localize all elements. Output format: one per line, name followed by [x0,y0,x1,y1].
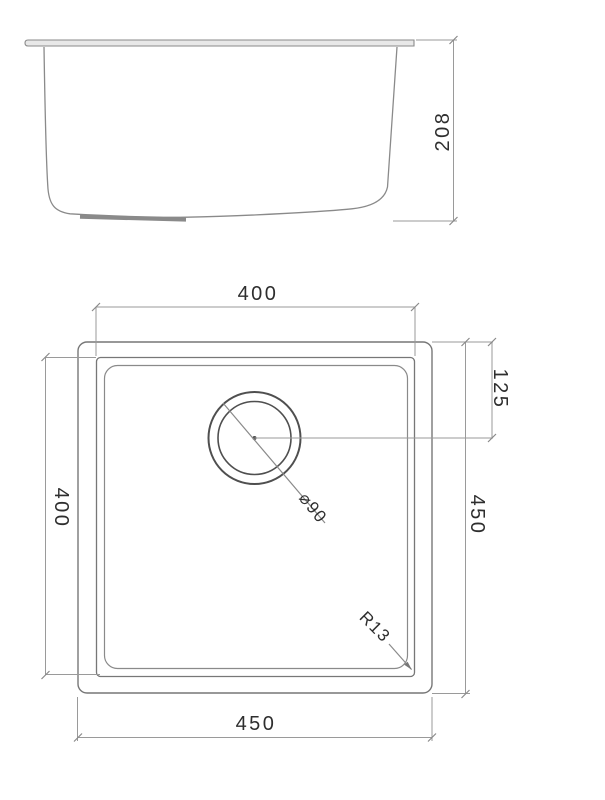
dim-label-top-width: 400 [238,284,279,304]
dim-label-drain-offset: 125 [490,369,510,410]
dim-label-bottom-width: 450 [236,714,277,734]
dim-label-right-height: 450 [467,495,487,536]
dim-top-400-extensions [96,307,415,356]
plan-view-linework [42,303,497,742]
side-bowl-outline [44,47,397,217]
drawing-linework [0,0,605,800]
dim-label-side-height: 208 [433,111,453,152]
dim-label-left-height: 400 [51,488,71,529]
side-drain-recess [80,217,186,220]
side-rim-slab [25,40,414,46]
side-view-linework [25,36,458,225]
sink-technical-drawing: 208 400 125 400 450 ⌀90 R13 450 [0,0,605,800]
